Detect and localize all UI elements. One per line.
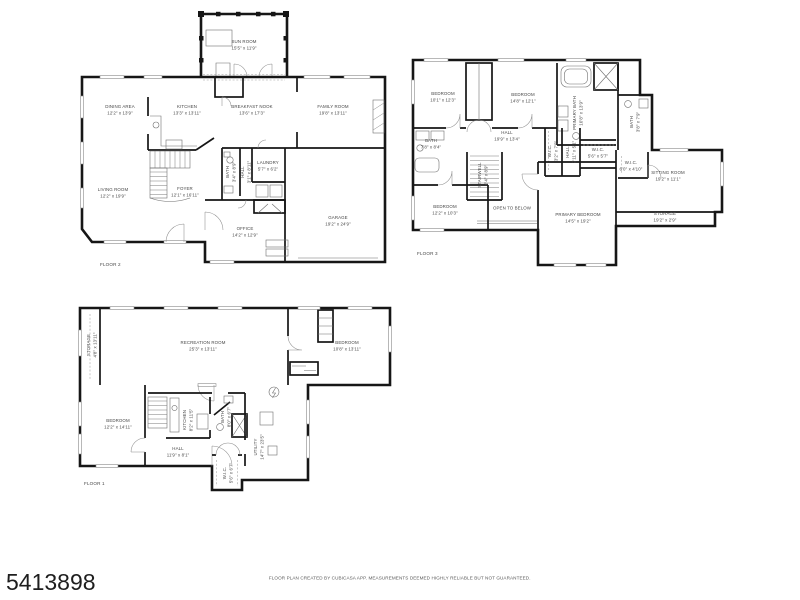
- room-label: BEDROOM10'1" x 12'3": [430, 91, 455, 104]
- room-label: BEDROOM12'2" x 14'11": [104, 418, 132, 431]
- room-label: DINING AREA12'2" x 13'9": [105, 104, 134, 117]
- room-label: STORAGE4'8" x 13'11": [86, 332, 99, 357]
- room-label: BATH7'8" x 8'4": [421, 138, 441, 151]
- room-dims: 25'3" x 13'11": [189, 346, 217, 352]
- disclaimer-text: FLOOR PLAN CREATED BY CUBICASA APP. MEAS…: [269, 576, 531, 581]
- room-label: UTILITY14'7" x 23'5": [253, 434, 266, 459]
- room-dims: 2'11" x 5'1": [571, 141, 577, 164]
- room-dims: 3'1" x 8'11": [246, 161, 252, 184]
- room-dims: 4'8" x 13'11": [92, 332, 98, 357]
- room-dims: 8'0" x 6'7": [226, 407, 232, 427]
- room-dims: 12'2" x 10'3": [432, 210, 457, 216]
- room-label: HALL11'9" x 8'1": [167, 446, 190, 459]
- room-label: BATH8'0" x 6'7": [220, 407, 233, 427]
- room-dims: 14'8" x 12'1": [510, 98, 535, 104]
- room-label: GARAGE19'2" x 24'9": [325, 215, 350, 228]
- room-label: BREAKFAST NOOK13'6" x 17'3": [231, 104, 272, 117]
- room-dims: 14'7" x 23'5": [259, 434, 265, 459]
- room-label: SUN ROOM15'5" x 11'9": [231, 39, 256, 52]
- room-label: W.I.C.6'0" x 4'10": [620, 160, 643, 173]
- room-label: SITTING ROOM19'2" x 11'1": [651, 170, 684, 183]
- room-dims: 11'9" x 8'1": [167, 452, 190, 458]
- room-dims: 10'8" x 13'9": [578, 100, 584, 125]
- room-dims: 13'3" x 13'11": [173, 110, 201, 116]
- room-dims: 19'2" x 24'9": [325, 221, 350, 227]
- room-label: STAIRWELL6'4" x 8'9": [477, 162, 490, 187]
- room-label: FAMILY ROOM19'8" x 13'11": [317, 104, 348, 117]
- room-dims: 6'0" x 4'10": [620, 166, 643, 172]
- room-dims: 13'6" x 17'3": [239, 110, 264, 116]
- floor-label: FLOOR 1: [84, 481, 105, 486]
- floor-label: FLOOR 2: [100, 262, 121, 267]
- room-label: BEDROOM12'2" x 10'3": [432, 204, 457, 217]
- room-dims: 19'8" x 13'11": [319, 110, 347, 116]
- room-label: W.I.C.5'6" x 5'7": [588, 147, 608, 160]
- room-dims: 5'6" x 5'7": [588, 153, 608, 159]
- room-dims: 5'6" x 6'7": [228, 463, 234, 483]
- room-dims: 8'2" x 11'5": [188, 409, 194, 432]
- room-label: KITCHEN8'2" x 11'5": [182, 409, 195, 432]
- room-dims: 12'2" x 19'9": [100, 193, 125, 199]
- room-dims: 3'8" x 7'9": [635, 112, 641, 132]
- room-dims: 5'7" x 6'2": [258, 166, 278, 172]
- room-dims: 6'4" x 8'9": [483, 165, 489, 185]
- room-label: HALL2'11" x 5'1": [565, 141, 578, 164]
- room-dims: 14'2" x 12'9": [232, 232, 257, 238]
- room-dims: 12'2" x 13'9": [107, 110, 132, 116]
- room-label: FOYER12'1" x 16'11": [171, 186, 199, 199]
- floor-label: FLOOR 3: [417, 251, 438, 256]
- room-dims: 3'4" x 8'9": [231, 162, 237, 182]
- room-name: OPEN TO BELOW: [493, 205, 531, 211]
- room-label: BATH3'4" x 8'9": [225, 162, 238, 182]
- room-dims: 19'2" x 2'9": [654, 217, 677, 223]
- room-label: W.I.C.5'6" x 6'7": [222, 463, 235, 483]
- room-label: BEDROOM14'8" x 12'1": [510, 92, 535, 105]
- room-dims: 10'1" x 12'3": [430, 97, 455, 103]
- room-dims: 19'9" x 13'4": [494, 136, 519, 142]
- room-dims: 19'2" x 11'1": [655, 176, 680, 182]
- room-label: PRIMARY BATH10'8" x 13'9": [572, 96, 585, 130]
- room-dims: 14'5" x 19'2": [565, 218, 590, 224]
- room-label: PRIMARY BEDROOM14'5" x 19'2": [555, 212, 600, 225]
- floor-plan-canvas: [0, 0, 800, 600]
- room-label: BATH3'8" x 7'9": [629, 112, 642, 132]
- room-dims: 12'1" x 16'11": [171, 192, 199, 198]
- room-dims: 10'8" x 13'11": [333, 346, 361, 352]
- room-label: OPEN TO BELOW: [493, 205, 531, 211]
- room-label: HALL3'1" x 8'11": [240, 161, 253, 184]
- room-dims: 7'8" x 8'4": [421, 144, 441, 150]
- room-dims: 12'2" x 14'11": [104, 424, 132, 430]
- room-label: LIVING ROOM12'2" x 19'9": [98, 187, 128, 200]
- room-dims: 3'2" x 7'9": [553, 141, 559, 161]
- room-label: RECREATION ROOM25'3" x 13'11": [181, 340, 226, 353]
- floor-1-walls: [79, 307, 392, 490]
- room-label: KITCHEN13'3" x 13'11": [173, 104, 201, 117]
- room-label: STORAGE19'2" x 2'9": [654, 211, 677, 224]
- disclaimer-row: FLOOR PLAN CREATED BY CUBICASA APP. MEAS…: [0, 573, 800, 583]
- room-label: HALL19'9" x 13'4": [494, 130, 519, 143]
- room-dims: 15'5" x 11'9": [231, 45, 256, 51]
- room-label: LAUNDRY5'7" x 6'2": [257, 160, 279, 173]
- room-label: W.I.C.3'2" x 7'9": [547, 141, 560, 161]
- room-label: OFFICE14'2" x 12'9": [232, 226, 257, 239]
- room-label: BEDROOM10'8" x 13'11": [333, 340, 361, 353]
